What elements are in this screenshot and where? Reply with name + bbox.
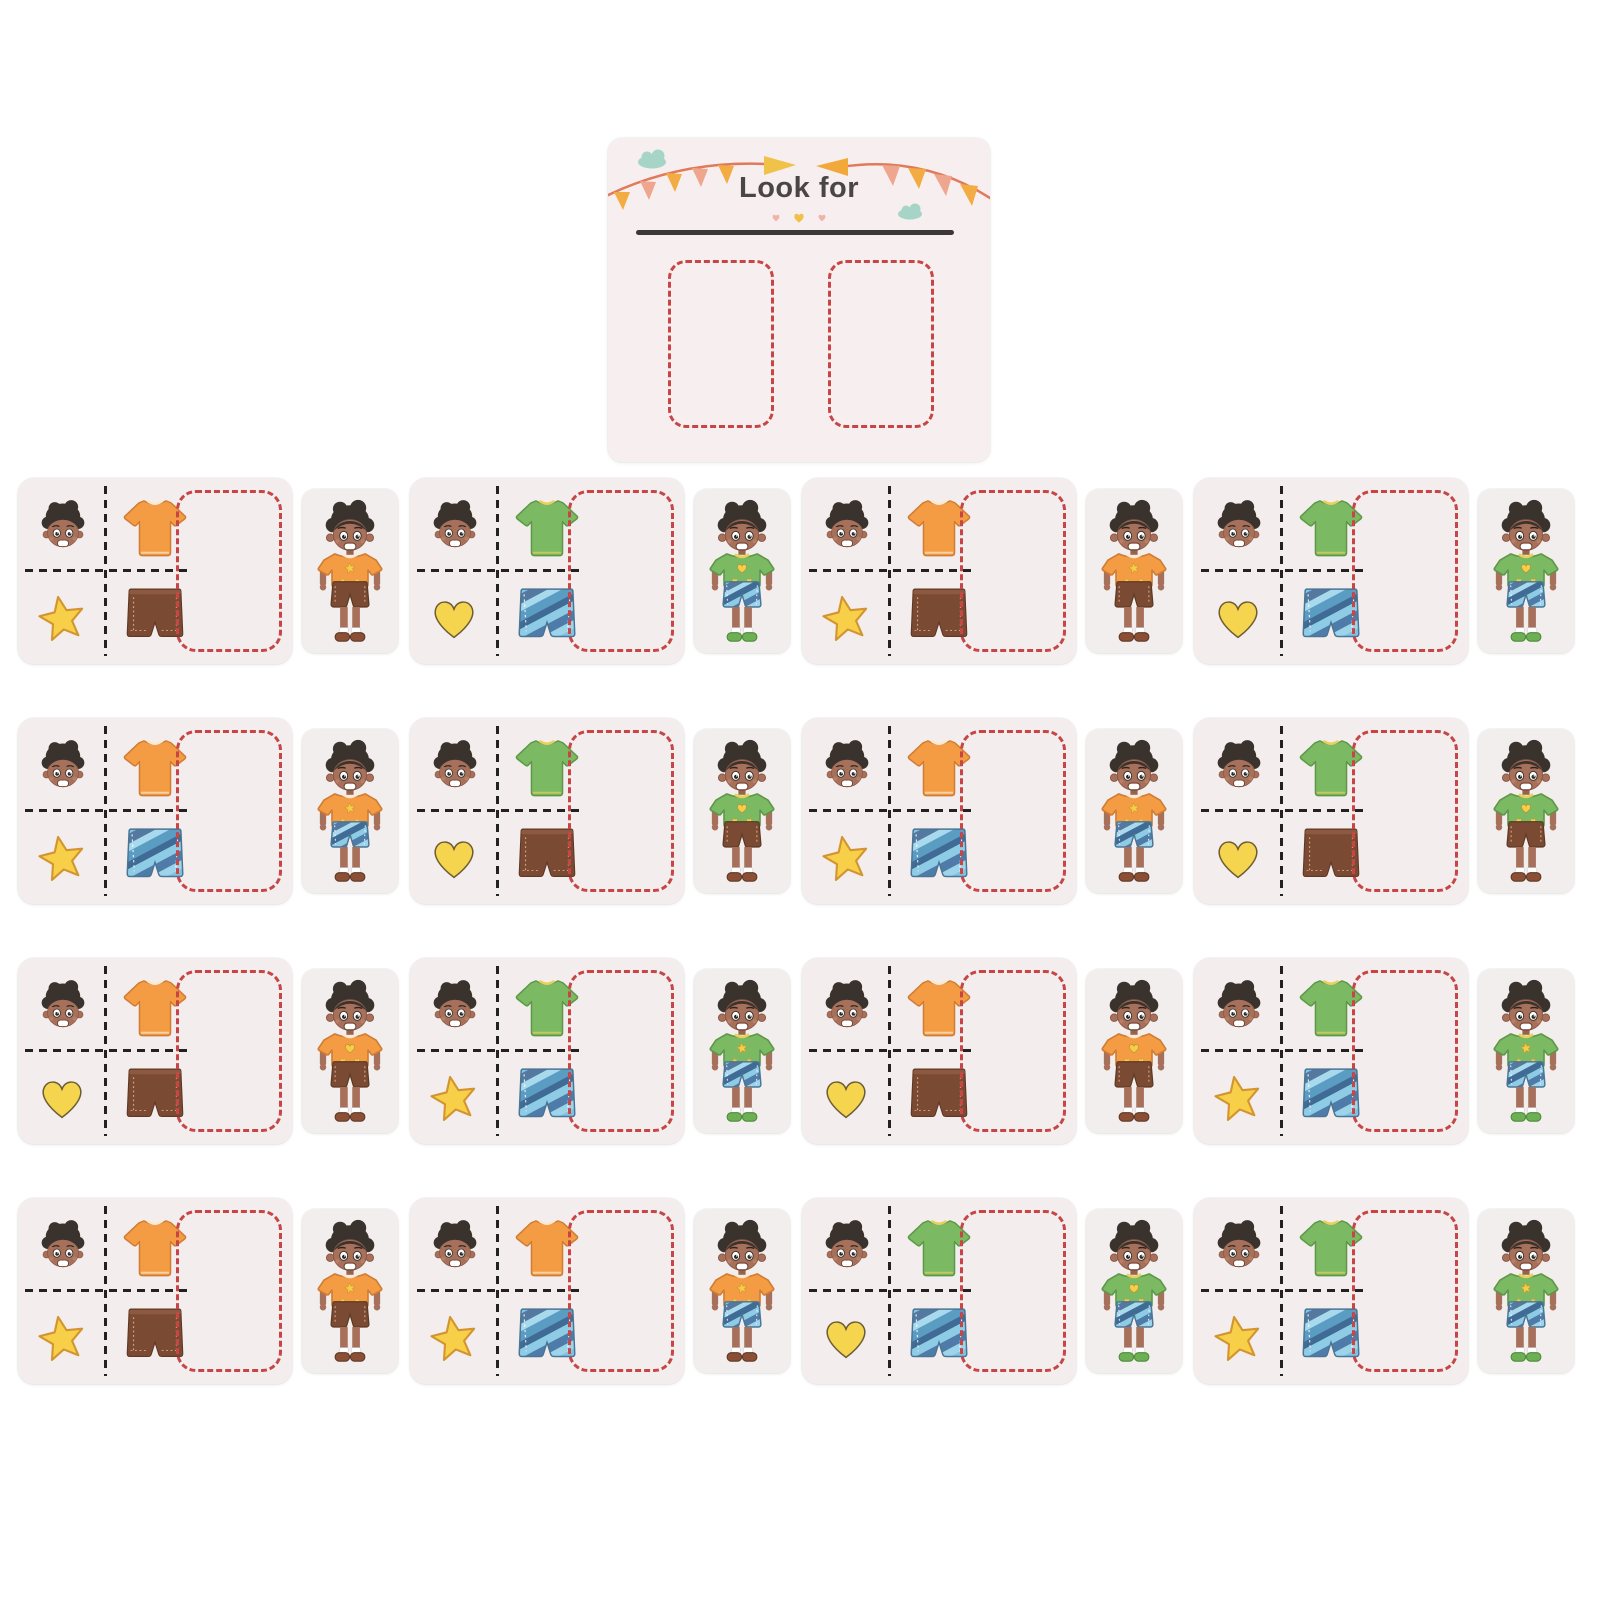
symbol-icon [32,826,92,888]
boy-face-icon [1208,494,1270,564]
boy-figure [1481,494,1571,648]
answer-slot [568,490,674,652]
puzzle-card [1194,478,1468,664]
answer-slot [960,970,1066,1132]
boy-face-icon [1208,1214,1270,1284]
puzzle-card [410,958,684,1144]
card-row-1 [18,478,1574,664]
boy-figure [305,494,395,648]
boy-figure [1089,974,1179,1128]
star-icon [1215,1077,1258,1120]
star-icon [823,597,866,640]
boy-figure [1089,1214,1179,1368]
puzzle-card [410,478,684,664]
answer-slot [960,1210,1066,1372]
product-photo: Look for [0,0,1600,1600]
puzzle-card [1194,1198,1468,1384]
heart-icon [1219,602,1257,637]
boy-face-icon [1208,974,1270,1044]
boy-face-icon [32,974,94,1044]
answer-slot [568,1210,674,1372]
boy-card [694,1209,790,1373]
star-icon [39,597,82,640]
symbol-icon [32,586,92,648]
star-icon [823,837,866,880]
puzzle-card [1194,958,1468,1144]
boy-figure [305,1214,395,1368]
boy-face-icon [32,1214,94,1284]
boy-face-icon [816,1214,878,1284]
boy-card [1478,729,1574,893]
card-pair-row1-col4 [1194,478,1574,664]
mini-heart-yellow-icon [791,210,807,225]
puzzle-card [18,718,292,904]
card-pair-row4-col2 [410,1198,790,1384]
boy-card [302,1209,398,1373]
card-pair-row4-col1 [18,1198,398,1384]
puzzle-card [802,958,1076,1144]
heart-icon [435,602,473,637]
boy-figure [305,734,395,888]
answer-slot [176,730,282,892]
heart-icon [1219,842,1257,877]
symbol-icon [32,1306,92,1368]
board-divider-line [636,230,954,235]
boy-card [1478,1209,1574,1373]
boy-card [694,729,790,893]
card-pair-row2-col4 [1194,718,1574,904]
puzzle-card [410,1198,684,1384]
answer-slot [1352,730,1458,892]
card-row-3 [18,958,1574,1144]
card-pair-row4-col3 [802,1198,1182,1384]
boy-card [1086,969,1182,1133]
boy-figure [1481,1214,1571,1368]
mini-heart-pink-icon [770,212,782,223]
answer-slot [960,730,1066,892]
boy-card [1086,729,1182,893]
boy-face-icon [1208,734,1270,804]
symbol-icon [816,1066,876,1128]
answer-slot [176,490,282,652]
boy-face-icon [816,494,878,564]
answer-slot [176,970,282,1132]
board-slot-1 [668,260,774,428]
card-row-2 [18,718,1574,904]
board-title: Look for [608,172,990,205]
card-pair-row2-col3 [802,718,1182,904]
boy-figure [1481,974,1571,1128]
answer-slot [960,490,1066,652]
heart-icon [827,1082,865,1117]
boy-figure [697,734,787,888]
puzzle-card [18,1198,292,1384]
star-icon [39,1317,82,1360]
card-pair-row3-col1 [18,958,398,1144]
heart-icon [435,842,473,877]
answer-slot [1352,1210,1458,1372]
look-for-board: Look for [608,138,990,462]
boy-card [1478,969,1574,1133]
star-icon [431,1317,474,1360]
symbol-icon [816,1306,876,1368]
puzzle-card [802,478,1076,664]
boy-card [302,729,398,893]
boy-face-icon [32,494,94,564]
star-icon [39,837,82,880]
boy-card [694,969,790,1133]
puzzle-card [802,718,1076,904]
card-pair-row1-col2 [410,478,790,664]
boy-face-icon [32,734,94,804]
symbol-icon [424,1306,484,1368]
symbol-icon [424,586,484,648]
answer-slot [1352,490,1458,652]
symbol-icon [424,826,484,888]
boy-figure [697,974,787,1128]
boy-face-icon [424,974,486,1044]
boy-figure [1089,734,1179,888]
mini-heart-pink-icon [816,212,828,223]
star-icon [1215,1317,1258,1360]
card-row-4 [18,1198,1574,1384]
boy-figure [697,494,787,648]
puzzle-card [802,1198,1076,1384]
boy-face-icon [424,494,486,564]
puzzle-card [18,958,292,1144]
boy-card [302,969,398,1133]
boy-face-icon [816,734,878,804]
boy-face-icon [816,974,878,1044]
boy-card [1478,489,1574,653]
boy-card [302,489,398,653]
card-pair-row4-col4 [1194,1198,1574,1384]
answer-slot [1352,970,1458,1132]
boy-figure [1089,494,1179,648]
boy-face-icon [424,1214,486,1284]
card-pair-row1-col1 [18,478,398,664]
boy-figure [697,1214,787,1368]
boy-figure [1481,734,1571,888]
boy-card [694,489,790,653]
symbol-icon [1208,1306,1268,1368]
symbol-icon [1208,826,1268,888]
card-pair-row3-col3 [802,958,1182,1144]
answer-slot [176,1210,282,1372]
hearts-decoration [608,210,990,225]
symbol-icon [32,1066,92,1128]
puzzle-card [1194,718,1468,904]
card-pair-row2-col2 [410,718,790,904]
card-pair-row3-col4 [1194,958,1574,1144]
puzzle-card [18,478,292,664]
star-icon [431,1077,474,1120]
card-pair-row1-col3 [802,478,1182,664]
heart-icon [827,1322,865,1357]
boy-figure [305,974,395,1128]
symbol-icon [816,826,876,888]
answer-slot [568,970,674,1132]
board-slot-2 [828,260,934,428]
card-pair-row3-col2 [410,958,790,1144]
symbol-icon [816,586,876,648]
symbol-icon [1208,1066,1268,1128]
symbol-icon [1208,586,1268,648]
cloud-left-icon [638,150,666,169]
card-pair-row2-col1 [18,718,398,904]
answer-slot [568,730,674,892]
puzzle-card [410,718,684,904]
boy-card [1086,1209,1182,1373]
heart-icon [43,1082,81,1117]
boy-card [1086,489,1182,653]
symbol-icon [424,1066,484,1128]
boy-face-icon [424,734,486,804]
